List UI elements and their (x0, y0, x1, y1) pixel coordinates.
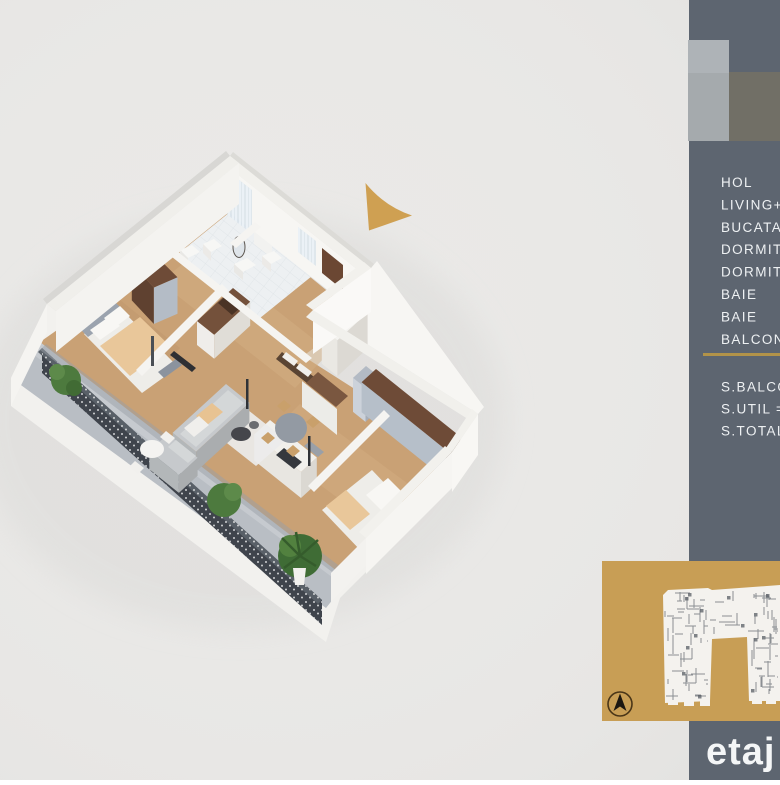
svg-text:BAIE: BAIE (721, 309, 757, 324)
svg-text:etaj: etaj (706, 731, 775, 773)
svg-text:BUCATARIE: BUCATARIE (721, 220, 780, 235)
svg-text:DORMITOR: DORMITOR (721, 265, 780, 280)
svg-text:S.UTIL = 55,4: S.UTIL = 55,4 (721, 402, 780, 417)
svg-text:S.BALCON = 8: S.BALCON = 8 (721, 380, 780, 395)
svg-text:LIVING+DINING: LIVING+DINING (721, 197, 780, 212)
svg-text:HOL: HOL (721, 175, 753, 190)
svg-text:DORMITOR: DORMITOR (721, 242, 780, 257)
svg-text:BALCON: BALCON (721, 332, 780, 347)
svg-text:BAIE: BAIE (721, 287, 757, 302)
svg-text:S.TOTAL = 63: S.TOTAL = 63 (721, 424, 780, 439)
